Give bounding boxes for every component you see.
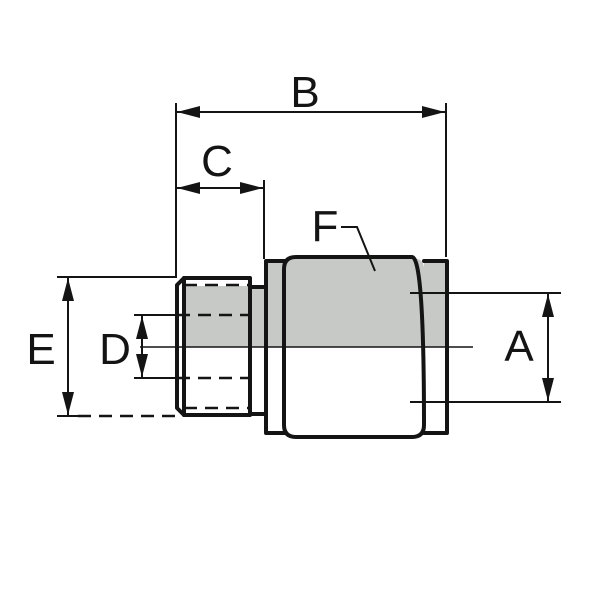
dimension-label-f: F xyxy=(312,202,339,251)
dimension-label-d: D xyxy=(99,325,131,374)
dimension-label-c: C xyxy=(201,137,233,186)
dimension-label-e: E xyxy=(26,325,55,374)
right-collar-section-fill xyxy=(424,262,447,347)
thread-section-fill xyxy=(184,286,250,347)
neck-section-fill xyxy=(250,288,266,347)
nut-body-section-fill xyxy=(284,258,424,347)
dimension-label-b: B xyxy=(290,68,319,117)
fitting-section-drawing: B C F E D A xyxy=(0,0,600,600)
technical-drawing-page: B C F E D A xyxy=(0,0,600,600)
dimension-label-a: A xyxy=(504,322,534,371)
